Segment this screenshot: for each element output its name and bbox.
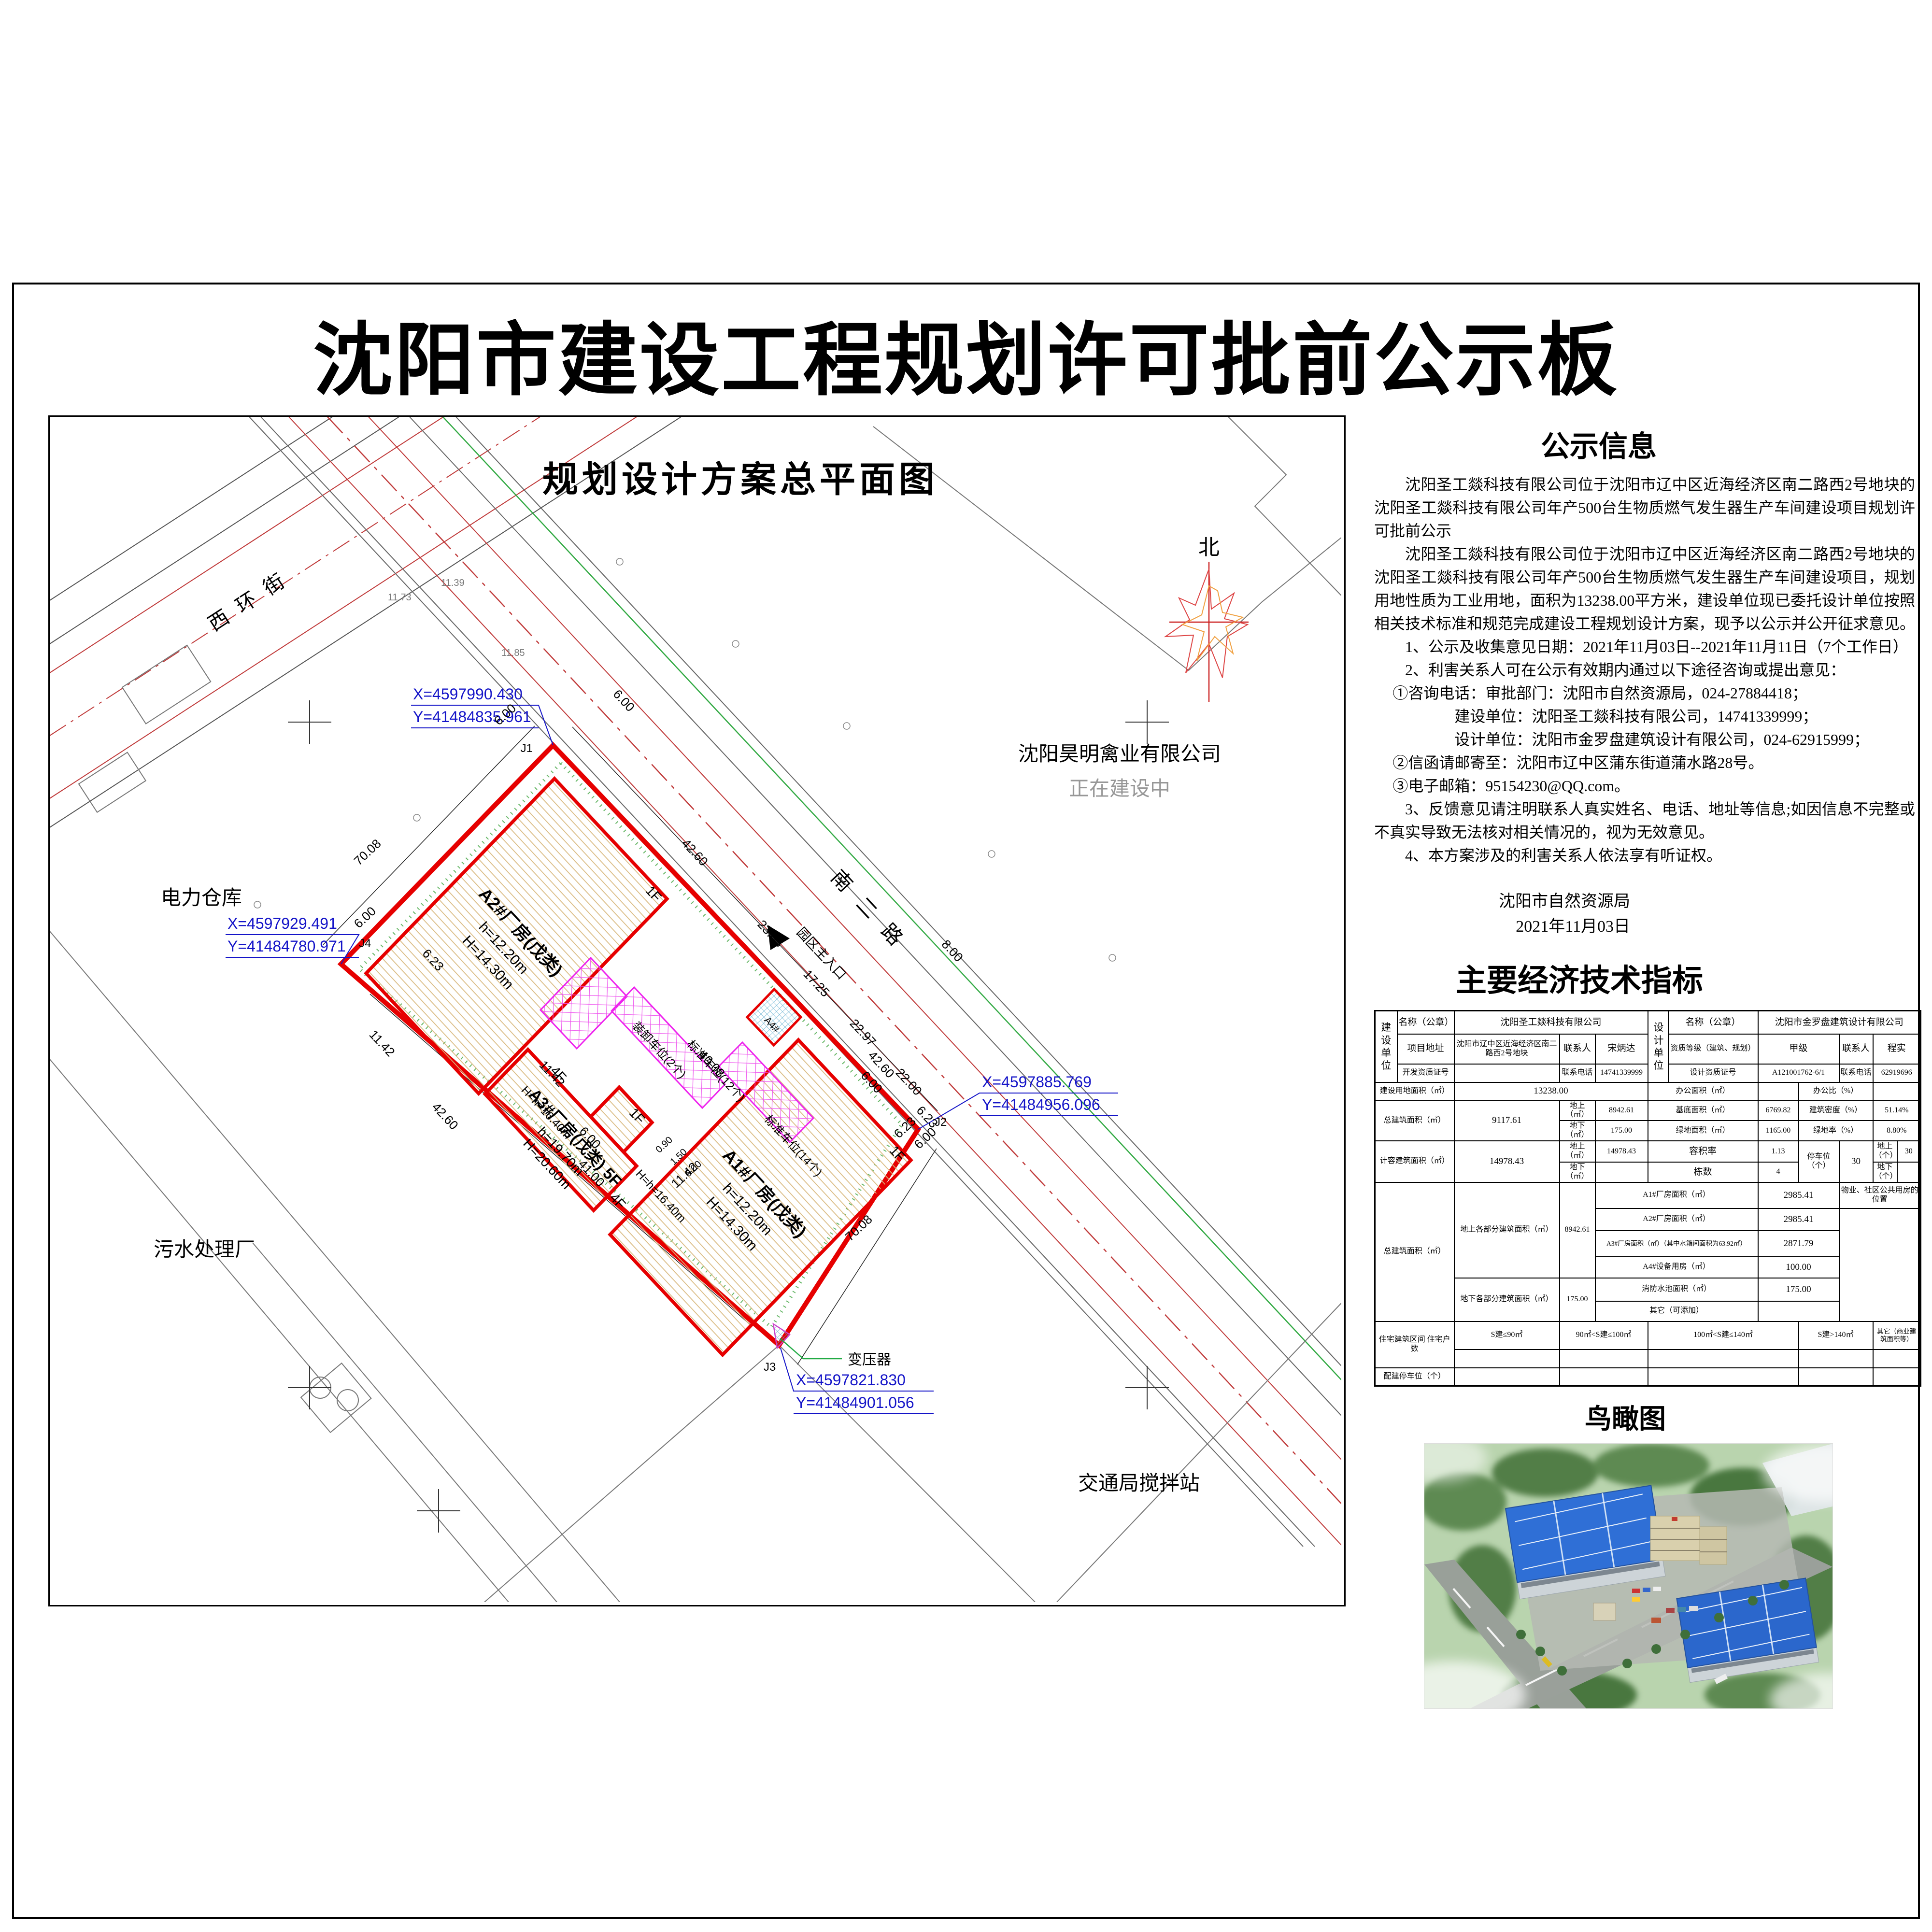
coord-x: X=4597990.430 [413,685,523,703]
indicator-cell: 30 [1839,1141,1873,1182]
indicator-cell: A2#厂房面积（㎡） [1595,1208,1758,1231]
site-plan-drawing: 西环街 南二路 园区主入口 [50,417,1341,1602]
notice-heading: 公示信息 [1374,423,1823,465]
indicator-cell: 联系人 [1560,1034,1595,1064]
notice-item: 设计单位：沈阳市金罗盘建筑设计有限公司，024-62915999； [1374,728,1915,751]
indicators-heading: 主要经济技术指标 [1374,956,1785,1000]
indicator-cell: 51.14% [1873,1101,1921,1121]
coord-point: J1 [521,742,533,755]
indicator-cell: 175.00 [1595,1121,1648,1141]
indicator-cell: 2871.79 [1758,1231,1839,1257]
indicator-cell: 计容建筑面积（㎡） [1375,1141,1454,1182]
indicator-cell: 物业、社区公共用房的位置 [1839,1182,1921,1208]
indicator-cell: 绿地率（%） [1799,1121,1873,1141]
svg-text:6.00: 6.00 [611,687,638,714]
indicator-cell: 办公面积（㎡） [1648,1082,1758,1101]
indicator-cell: 地上（㎡） [1560,1101,1595,1121]
right-column: 公示信息 沈阳圣工燚科技有限公司位于沈阳市辽中区近海经济区南二路西2号地块的沈阳… [1374,415,1920,1709]
indicator-cell: 8942.61 [1595,1101,1648,1121]
indicator-cell: 地下（㎡） [1560,1121,1595,1141]
svg-text:70.08: 70.08 [351,836,384,868]
coord-y: Y=41484956.096 [982,1096,1100,1113]
indicator-cell: 名称（公章） [1668,1011,1758,1034]
indicator-cell: 联系电话 [1839,1064,1873,1082]
coord-point: J4 [359,937,371,950]
indicator-cell [1454,1064,1560,1082]
north-label: 北 [1198,536,1220,559]
indicator-cell: 宋炳达 [1595,1034,1648,1064]
indicator-cell: 联系人 [1839,1034,1873,1064]
notice-signature: 沈阳市自然资源局 [1374,889,1920,914]
road-south-label: 南二路 [826,866,918,962]
indicator-cell: 消防水池面积（㎡） [1595,1278,1758,1301]
indicator-cell: 名称（公章） [1397,1011,1454,1034]
indicator-cell: 30 [1897,1141,1921,1162]
indicator-cell: 1.13 [1758,1141,1799,1162]
indicator-cell: 办公比（%） [1799,1082,1873,1101]
indicator-cell: 基底面积（㎡） [1648,1101,1758,1121]
indicator-cell: 90㎡<S建≤100㎡ [1560,1321,1648,1350]
indicator-cell: 地下各部分建筑面积（㎡） [1454,1278,1560,1321]
indicator-cell [1595,1162,1648,1182]
indicator-cell [1839,1208,1921,1321]
indicator-cell: 资质等级（建筑、规划） [1668,1034,1758,1064]
indicator-cell [1648,1368,1799,1386]
notice-item: ①咨询电话：审批部门：沈阳市自然资源局，024-27884418； [1374,682,1915,705]
indicator-cell: 地上各部分建筑面积（㎡） [1454,1182,1560,1278]
indicator-cell: 住宅建筑区间 住宅户数 [1375,1321,1454,1368]
indicator-cell: 容积率 [1648,1141,1758,1162]
notice-date: 2021年11月03日 [1374,914,1920,939]
svg-text:42.60: 42.60 [429,1100,461,1133]
indicator-cell: 13238.00 [1454,1082,1648,1101]
notice-item: ②信函请邮寄至：沈阳市辽中区蒲东街道蒲水路28号。 [1374,751,1915,774]
indicator-cell: 地下（㎡） [1560,1162,1595,1182]
coord-x: X=4597821.830 [796,1371,906,1389]
indicator-cell: 地上（㎡） [1560,1141,1595,1162]
indicator-cell: S建>140㎡ [1799,1321,1873,1350]
notice-item: 3、反馈意见请注明联系人真实姓名、电话、地址等信息;如因信息不完整或不真实导致无… [1374,797,1915,844]
indicator-cell [1758,1301,1839,1321]
birdseye-image [1424,1443,1833,1709]
indicator-cell: 建筑密度（%） [1799,1101,1873,1121]
svg-text:11.42: 11.42 [367,1027,398,1060]
indicator-cell [1560,1350,1648,1368]
indicator-cell [1758,1082,1799,1101]
indicator-cell: 100㎡<S建≤140㎡ [1648,1321,1799,1350]
indicator-cell: 14978.43 [1595,1141,1648,1162]
indicator-cell [1873,1082,1921,1101]
notice-item: 2、利害关系人可在公示有效期内通过以下途径咨询或提出意见： [1374,658,1915,682]
coordinate-callout-j2: X=4597885.769 Y=41484956.096 J2 [918,1073,1118,1129]
coord-y: Y=41484780.971 [227,938,346,955]
indicator-cell: 沈阳市金罗盘建筑设计有限公司 [1758,1011,1921,1034]
indicator-cell: 14741339999 [1595,1064,1648,1082]
notice-item: ③电子邮箱：95154230@QQ.com。 [1374,774,1915,797]
neighbor-traffic-label: 交通局搅拌站 [1078,1472,1200,1494]
indicator-cell: 14978.43 [1454,1141,1560,1182]
notice-paragraph: 沈阳圣工燚科技有限公司位于沈阳市辽中区近海经济区南二路西2号地块的沈阳圣工燚科技… [1374,542,1915,635]
indicator-cell: 项目地址 [1397,1034,1454,1064]
indicator-cell: 8942.61 [1560,1182,1595,1278]
indicator-cell: 地下（个） [1873,1162,1897,1182]
indicator-cell: 甲级 [1758,1034,1839,1064]
indicator-cell: 其它（商业建筑面积等） [1873,1321,1921,1350]
indicator-cell: 栋数 [1648,1162,1758,1182]
indicator-cell: 绿地面积（㎡） [1648,1121,1758,1141]
indicator-cell: A4#设备用房（㎡） [1595,1257,1758,1278]
indicator-cell: 地上（个） [1873,1141,1897,1162]
elevation-markers [254,558,1116,961]
notice-item: 建设单位：沈阳圣工燚科技有限公司，14741339999； [1374,705,1915,728]
indicator-cell [1560,1368,1648,1386]
indicator-cell: 开发资质证号 [1397,1064,1454,1082]
indicators-table: 建设单位名称（公章）沈阳圣工燚科技有限公司设计单位名称（公章）沈阳市金罗盘建筑设… [1374,1010,1921,1387]
coord-x: X=4597929.491 [227,915,337,932]
indicator-cell: 9117.61 [1454,1101,1560,1141]
neighbor-poultry-status: 正在建设中 [1069,777,1170,800]
coord-x: X=4597885.769 [982,1073,1092,1091]
indicator-cell: 联系电话 [1560,1064,1595,1082]
indicator-cell [1648,1350,1799,1368]
plan-title: 规划设计方案总平面图 [209,451,1272,502]
indicator-cell: A1#厂房面积（㎡） [1595,1182,1758,1208]
indicator-cell [1454,1350,1560,1368]
notice-item: 1、公示及收集意见日期：2021年11月03日--2021年11月11日（7个工… [1374,635,1915,658]
coord-y: Y=41484901.056 [796,1394,914,1411]
indicator-cell: 175.00 [1560,1278,1595,1321]
notice-body: 沈阳圣工燚科技有限公司位于沈阳市辽中区近海经济区南二路西2号地块的沈阳圣工燚科技… [1374,473,1915,867]
indicator-cell: 配建停车位（个） [1375,1368,1454,1386]
indicator-cell: 2985.41 [1758,1208,1839,1231]
indicator-cell: 100.00 [1758,1257,1839,1278]
indicator-cell: 建设单位 [1375,1011,1397,1082]
coord-point: J3 [764,1361,776,1374]
indicator-cell [1897,1162,1921,1182]
indicator-cell: S建≤90㎡ [1454,1321,1560,1350]
notice-paragraph: 沈阳圣工燚科技有限公司位于沈阳市辽中区近海经济区南二路西2号地块的沈阳圣工燚科技… [1374,473,1915,542]
indicator-cell: 总建筑面积（㎡） [1375,1182,1454,1321]
indicator-cell: 6769.82 [1758,1101,1799,1121]
gatehouse [1593,1603,1616,1620]
indicator-cell: 1165.00 [1758,1121,1799,1141]
indicator-cell [1799,1368,1873,1386]
transformer-label: 变压器 [848,1352,891,1368]
birdseye-heading: 鸟瞰图 [1374,1397,1876,1436]
indicator-cell: 62919696 [1873,1064,1921,1082]
indicator-cell: 停车位（个） [1799,1141,1839,1182]
north-arrow-icon: 北 [1165,536,1249,702]
indicator-cell: 4 [1758,1162,1799,1182]
indicator-cell: 设计资质证号 [1668,1064,1758,1082]
indicator-cell: 建设用地面积（㎡） [1375,1082,1454,1101]
indicator-cell [1454,1368,1560,1386]
road-west-label: 西环街 [204,563,299,636]
indicator-cell: 设计单位 [1648,1011,1668,1082]
indicator-cell: 175.00 [1758,1278,1839,1301]
dimension-lines [323,726,938,1364]
indicator-cell [1873,1368,1921,1386]
page-title: 沈阳市建设工程规划许可批前公示板 [0,296,1932,411]
indicator-cell [1799,1350,1873,1368]
notice-item: 4、本方案涉及的利害关系人依法享有听证权。 [1374,844,1915,867]
indicator-cell: 程实 [1873,1034,1921,1064]
indicator-cell: 沈阳圣工燚科技有限公司 [1454,1011,1648,1034]
svg-text:0.90: 0.90 [653,1135,674,1155]
indicator-cell: 总建筑面积（㎡） [1375,1101,1454,1141]
indicator-cell: A3#厂房面积（㎡）（其中水箱间面积为63.92㎡） [1595,1231,1758,1257]
indicator-cell: 8.80% [1873,1121,1921,1141]
site-plan-panel: 西环街 南二路 园区主入口 [48,415,1346,1606]
indicator-cell: 其它（可添加） [1595,1301,1758,1321]
elevation-value: 11.73 [388,592,412,603]
elevation-value: 11.85 [501,648,525,658]
indicator-cell: 沈阳市辽中区近海经济区南二路西2号地块 [1454,1034,1560,1064]
svg-text:8.00: 8.00 [939,937,966,965]
indicator-cell: A121001762-6/1 [1758,1064,1839,1082]
neighbor-power-label: 电力仓库 [161,886,242,909]
elevation-value: 11.39 [441,578,465,588]
indicator-cell: 2985.41 [1758,1182,1839,1208]
entrance-label: 园区主入口 [794,925,849,982]
neighbor-poultry-label: 沈阳昊明禽业有限公司 [1018,742,1221,765]
indicator-cell [1873,1350,1921,1368]
neighbor-sewage-label: 污水处理厂 [154,1238,255,1261]
